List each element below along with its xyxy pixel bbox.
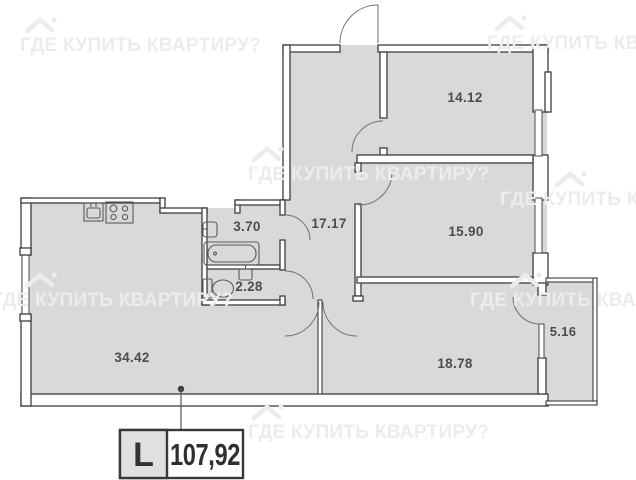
wall-hall-east-foot xyxy=(353,296,363,301)
wall-bath-east-1 xyxy=(280,200,285,215)
wall-balcony-south xyxy=(546,401,597,405)
window-balcony-icon xyxy=(539,324,544,358)
plan-type-letter: L xyxy=(133,436,154,474)
wall-hall-west xyxy=(283,45,290,200)
wall-hall-east-stub xyxy=(355,163,361,172)
wall-bedroom1-west xyxy=(380,52,387,118)
wall-bath-bottom xyxy=(202,300,285,305)
room-label-bedroom-1: 14.12 xyxy=(447,90,482,105)
apartment-floor xyxy=(21,45,597,406)
wall-bath-east-3 xyxy=(280,296,285,305)
room-label-bathroom: 3.70 xyxy=(233,219,260,234)
window-bedroom1-icon xyxy=(535,110,542,156)
wall-west-lower xyxy=(21,315,31,406)
wall-bedroom2-bedroom3 xyxy=(357,277,533,283)
wall-top-left-of-entrance xyxy=(283,45,340,52)
wall-top-right-of-entrance xyxy=(378,45,548,52)
window-living-cap-bottom xyxy=(20,314,31,321)
wall-east-pilaster xyxy=(545,72,551,112)
wall-living-bedroom3 xyxy=(318,300,322,394)
room-label-balcony: 5.16 xyxy=(550,324,577,339)
wall-balcony-north xyxy=(546,278,597,282)
floor-plan: 14.12 15.90 17.17 3.70 2.28 34.42 18.78 … xyxy=(0,0,636,480)
total-area-value: 107,92 xyxy=(170,437,240,472)
wall-balcony-partition-top xyxy=(538,283,546,295)
room-label-wc: 2.28 xyxy=(235,279,263,294)
wall-bath-top xyxy=(235,200,283,205)
wall-balcony-partition-bottom xyxy=(538,358,546,394)
wall-living-top-b xyxy=(160,208,207,213)
room-label-living-kitchen: 34.42 xyxy=(114,350,149,365)
window-living-cap-top xyxy=(20,248,31,255)
wall-bedroom1-bedroom2 xyxy=(357,155,533,163)
room-label-bedroom-2: 15.90 xyxy=(448,224,483,239)
wall-east-mid xyxy=(533,155,548,200)
floor-plan-page: 14.12 15.90 17.17 3.70 2.28 34.42 18.78 … xyxy=(0,0,636,480)
room-label-bedroom-3: 18.78 xyxy=(437,356,472,371)
room-label-hallway: 17.17 xyxy=(311,216,346,231)
wall-balcony-east xyxy=(593,278,597,405)
wall-bath-divider xyxy=(207,265,280,269)
wall-west-upper xyxy=(21,198,31,255)
window-living-icon xyxy=(22,255,29,315)
window-bedroom2-icon xyxy=(535,198,542,253)
wall-bottom xyxy=(21,394,548,406)
entrance-door-arc xyxy=(340,5,378,43)
wall-living-top-a xyxy=(21,198,160,203)
wall-bath-east-2 xyxy=(280,240,285,270)
